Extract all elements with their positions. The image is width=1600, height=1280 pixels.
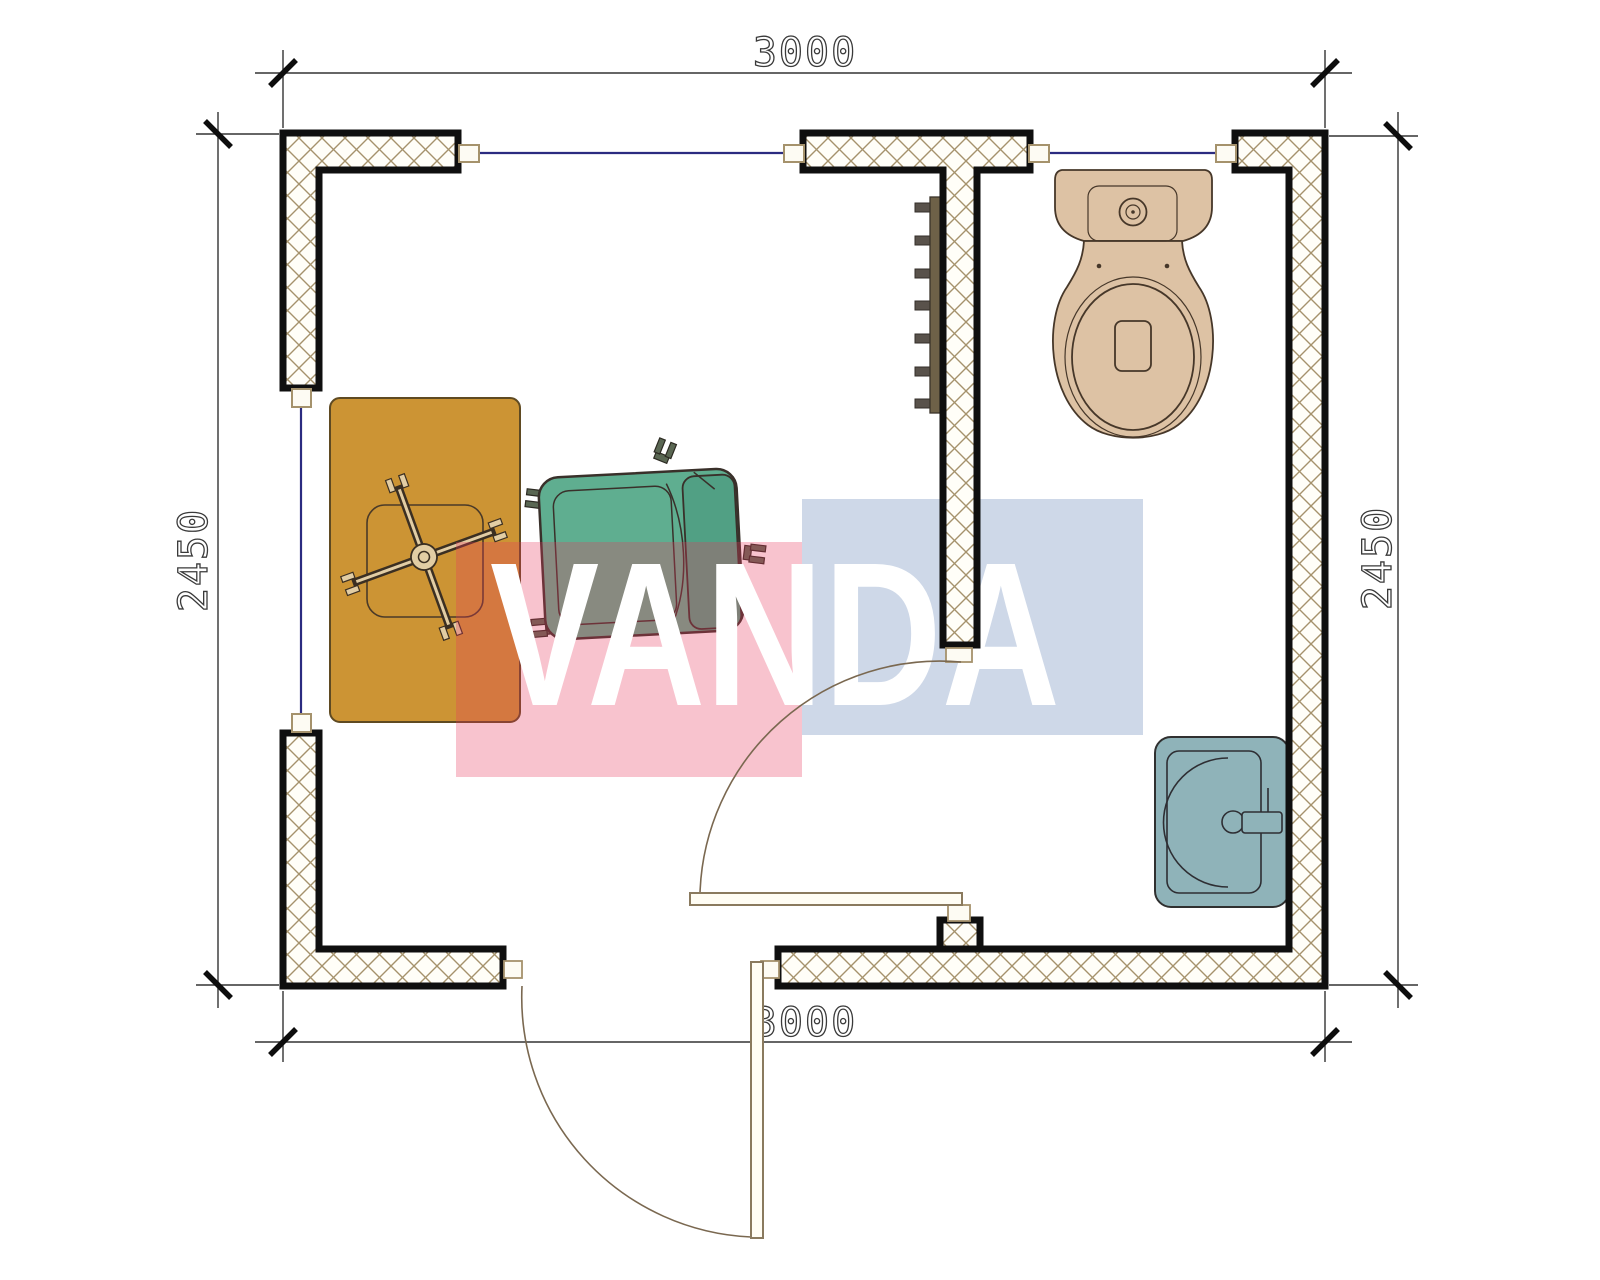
exterior-door-jamb-left — [504, 961, 522, 978]
dim-text-left: 2450 — [171, 508, 217, 612]
toilet-bowl — [1053, 241, 1213, 438]
floor-plan-drawing: VANDA — [0, 0, 1600, 1280]
window-frame-block — [459, 145, 479, 162]
window-frame-block — [292, 714, 311, 732]
window-frame-block — [1029, 145, 1049, 162]
exterior-door — [504, 961, 779, 1238]
wall-partition-stub — [940, 920, 980, 949]
interior-door-leaf — [690, 893, 962, 905]
wall-top-left — [283, 133, 458, 388]
dim-text-bottom: 3000 — [753, 1000, 857, 1046]
sink — [1155, 737, 1289, 907]
watermark: VANDA — [456, 499, 1143, 777]
exterior-door-leaf — [751, 962, 763, 1238]
dim-text-right: 2450 — [1355, 506, 1401, 610]
exterior-door-swing-arc — [522, 986, 751, 1237]
window-frame-block — [784, 145, 804, 162]
sink-faucet — [1242, 812, 1282, 833]
interior-door-jamb-bottom — [948, 905, 970, 921]
interior-door-jamb-top — [946, 648, 972, 662]
radiator-fins — [915, 203, 931, 408]
toilet-hinge-dot-right — [1165, 264, 1170, 269]
floor-plan-page: VANDA — [0, 0, 1600, 1280]
dim-text-top: 3000 — [753, 30, 857, 76]
window-frame-block — [1216, 145, 1236, 162]
window-frame-block — [292, 389, 311, 407]
toilet-hinge-dot-left — [1097, 264, 1102, 269]
toilet-flush-dot — [1131, 210, 1135, 214]
toilet — [1053, 170, 1213, 438]
